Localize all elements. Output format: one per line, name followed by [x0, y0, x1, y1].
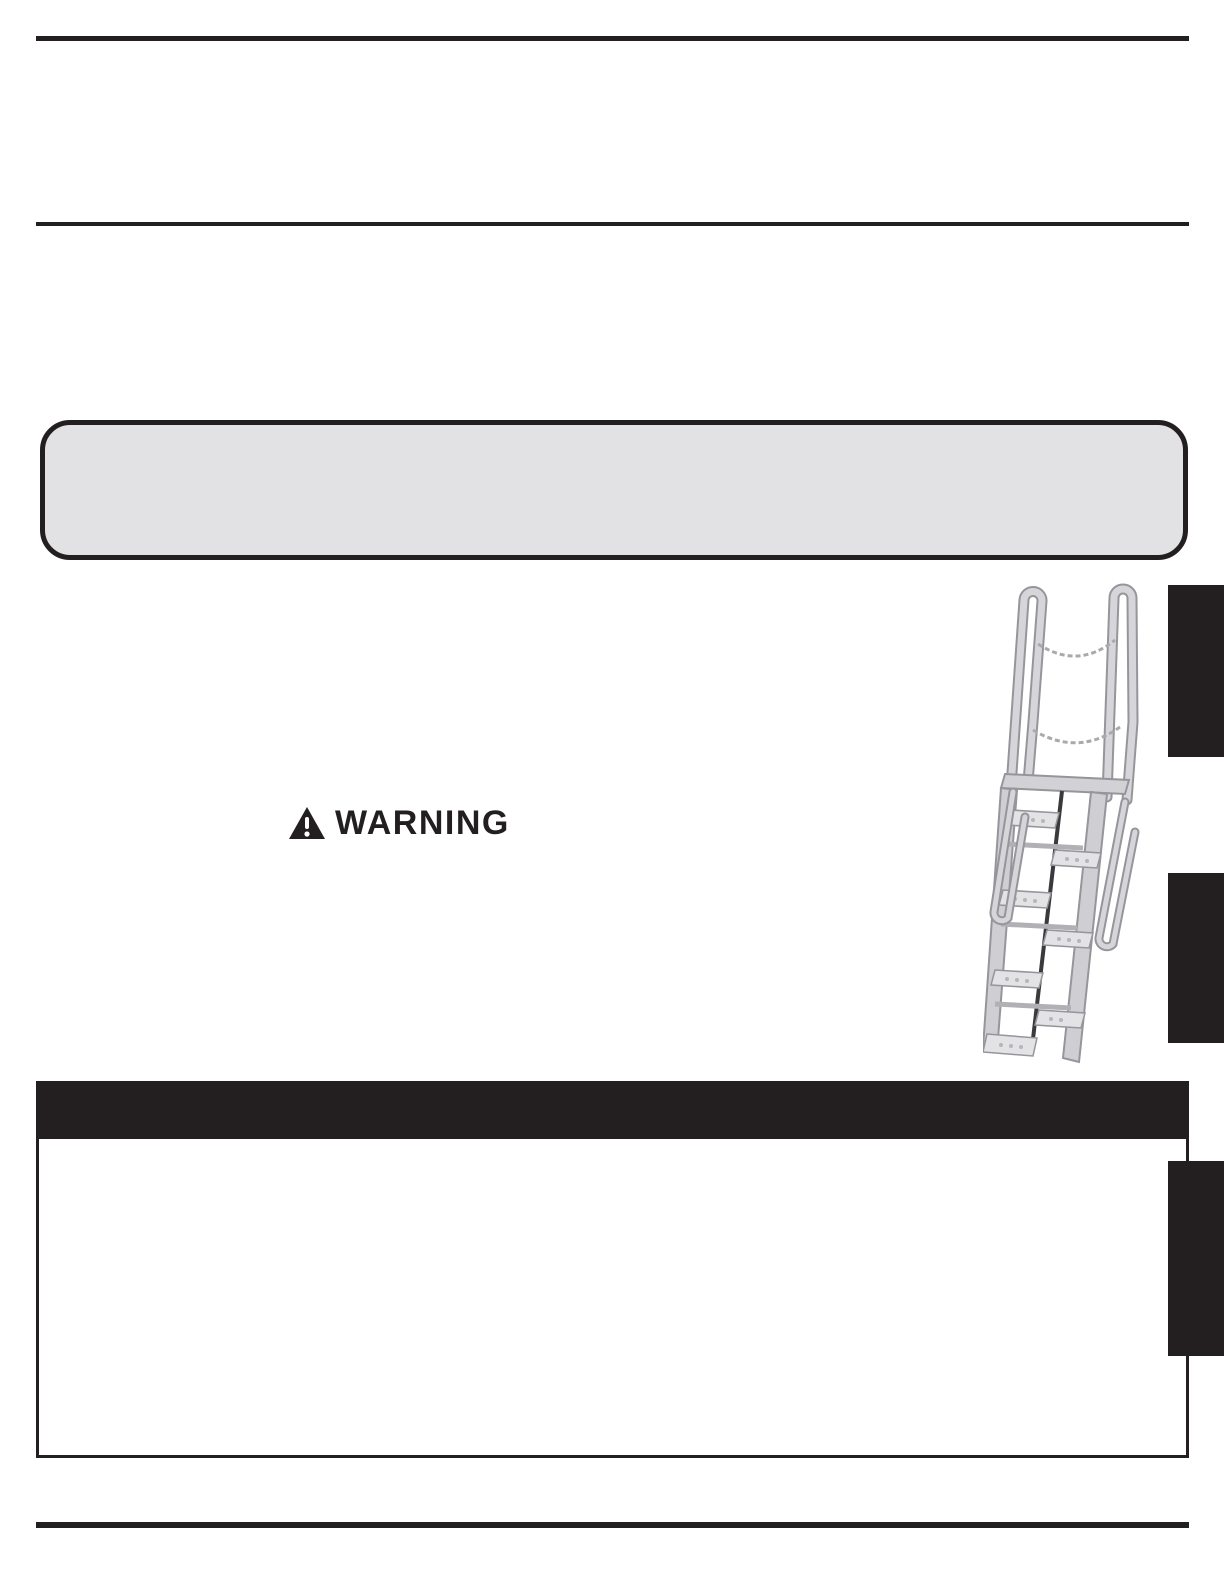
manual-page: WARNING [0, 0, 1224, 1584]
header-divider-rule [36, 222, 1189, 226]
warning-label: WARNING [288, 803, 510, 843]
side-tab-1 [1168, 585, 1224, 757]
content-outline-box [36, 1139, 1189, 1458]
side-tab-3 [1168, 1161, 1224, 1356]
bottom-rule [36, 1522, 1189, 1528]
warning-text: WARNING [335, 806, 510, 841]
ladder-illustration-container [983, 582, 1147, 1070]
side-tab-2 [1168, 873, 1224, 1043]
callout-box [40, 420, 1188, 560]
top-rule [36, 36, 1189, 41]
warning-triangle-icon [288, 806, 326, 840]
walkthrough-rails [1011, 589, 1133, 800]
section-header-bar [36, 1081, 1189, 1139]
alternating-tread-ladder-illustration [983, 582, 1147, 1070]
